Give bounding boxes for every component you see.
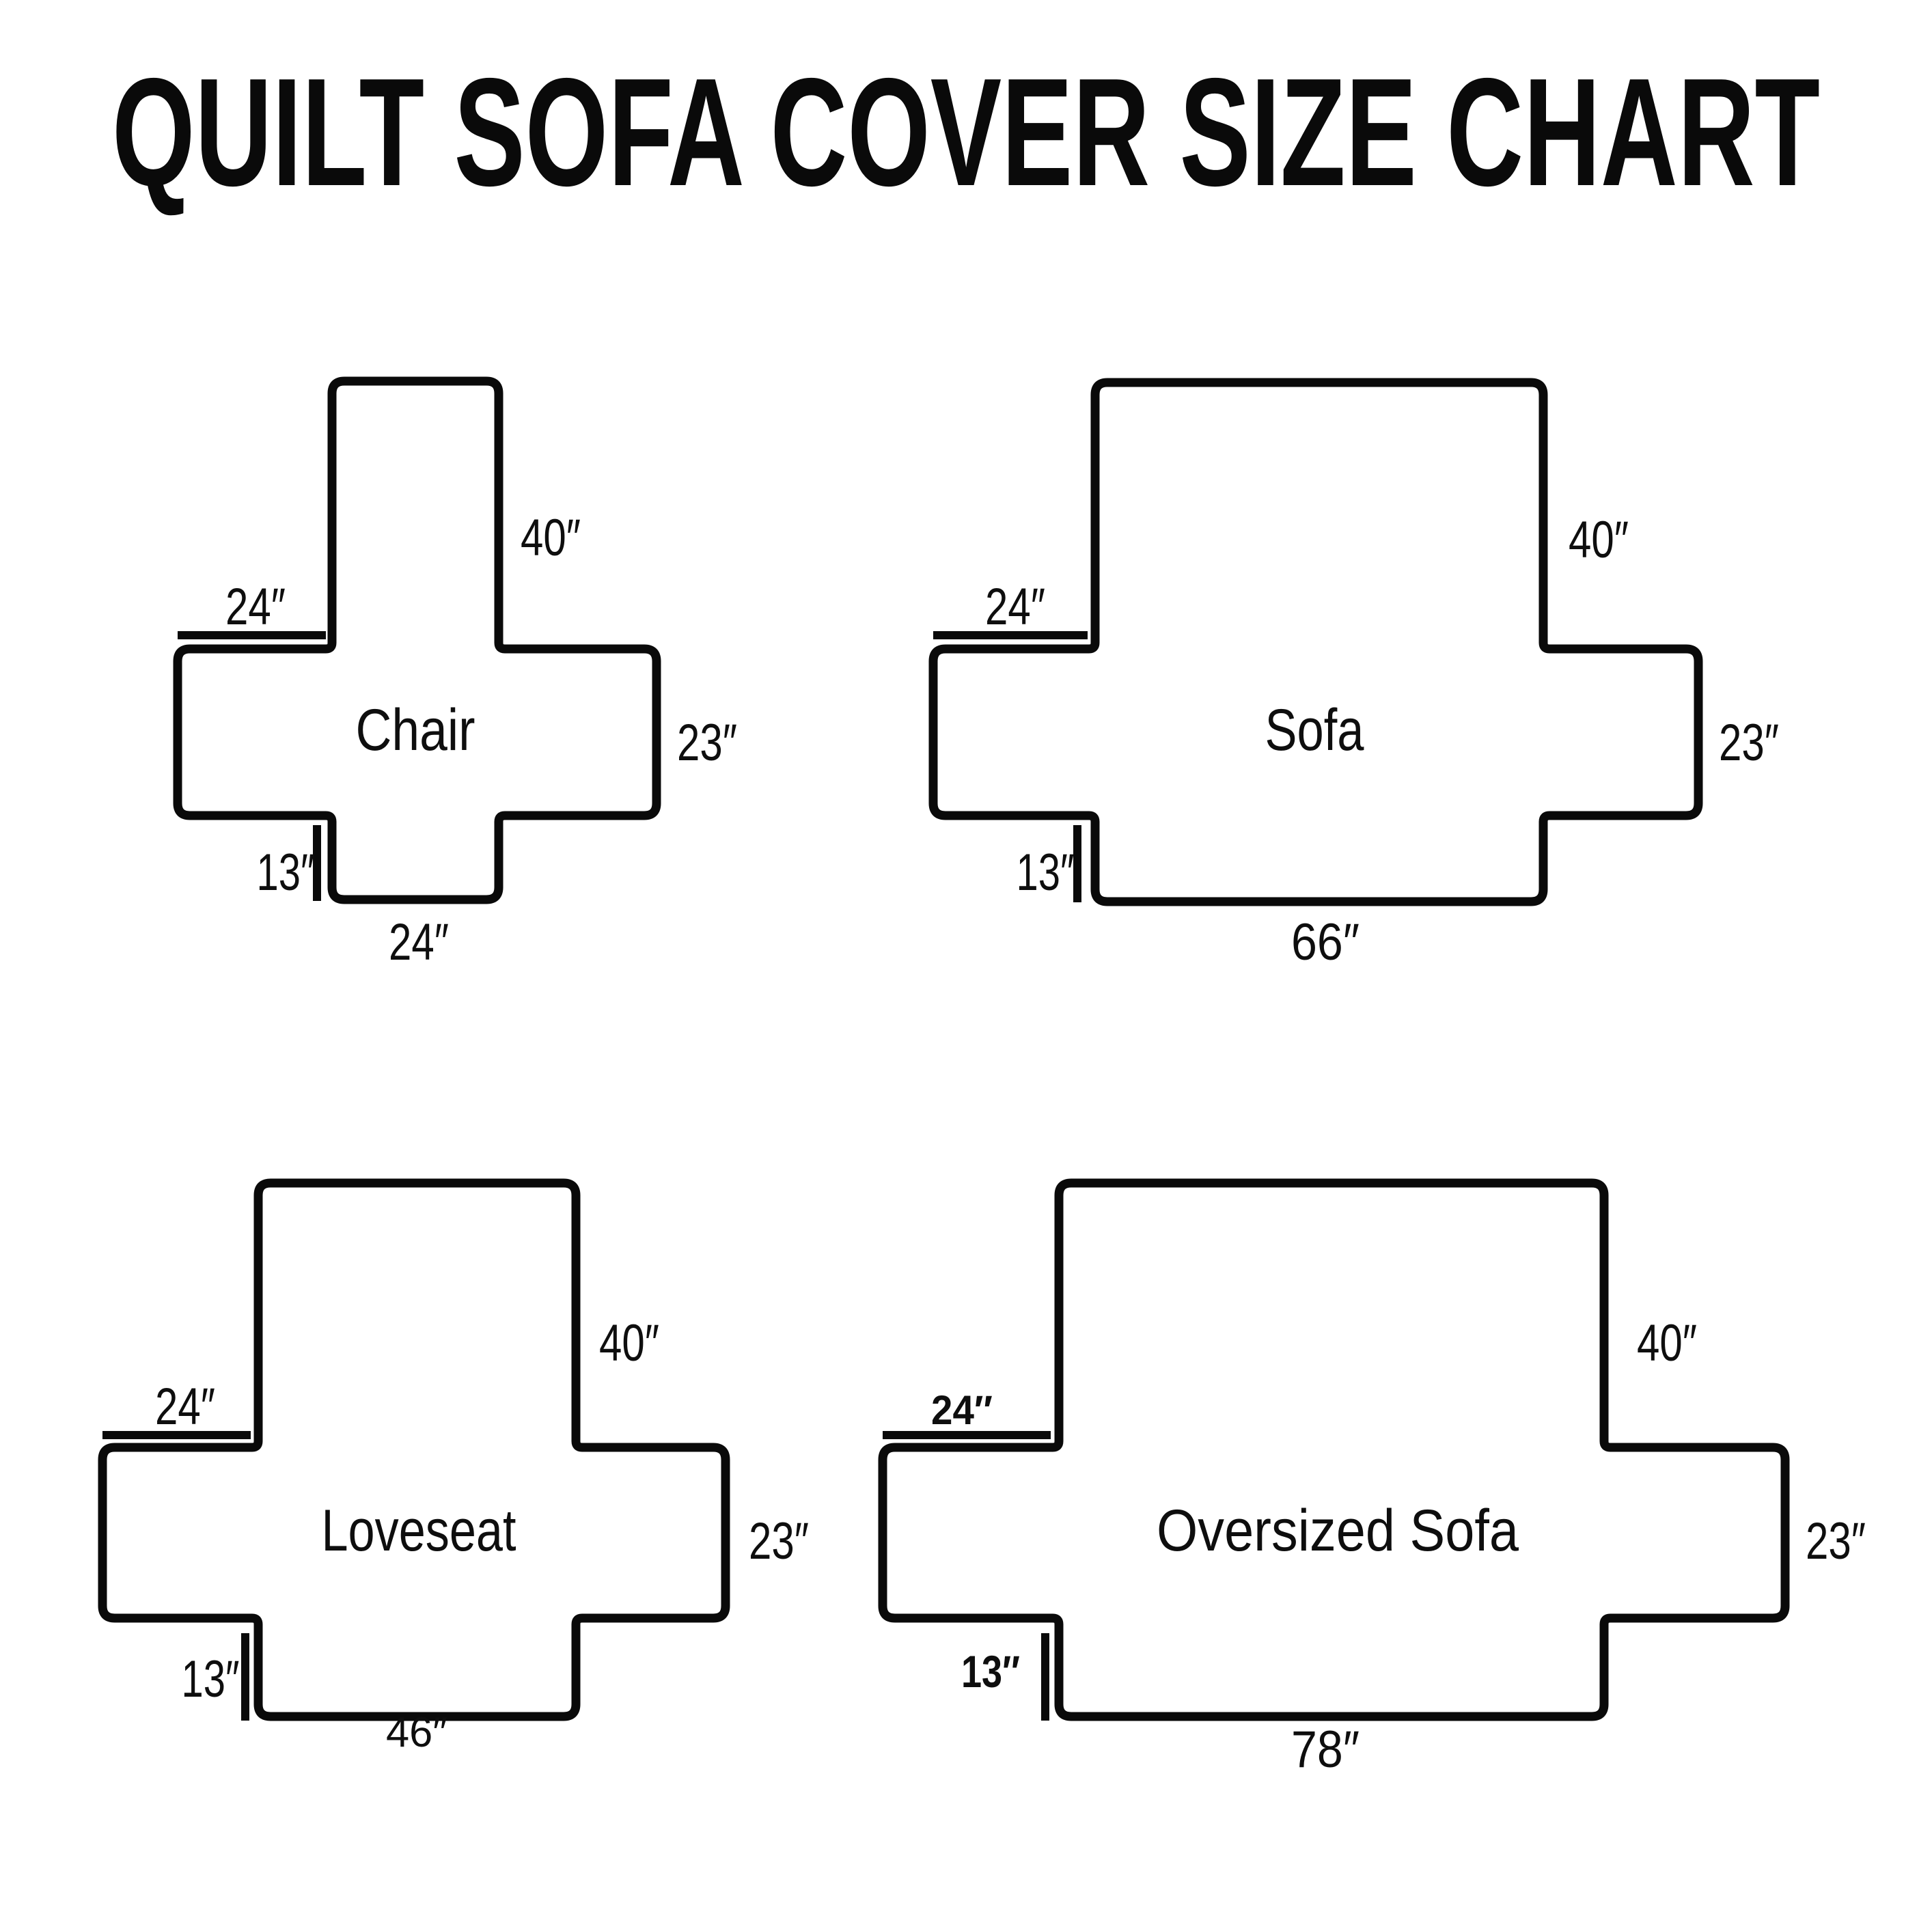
chair-seat-width-label: 24″ [389,913,449,971]
sofa-outline [933,383,1698,902]
oversized-sofa-seat-width-label: 78″ [1291,1721,1360,1779]
sofa-back-height-label: 40″ [1569,511,1629,569]
loveseat-arm-width-label: 24″ [155,1378,215,1436]
quilt-sofa-cover-size-chart: QUILT SOFA COVER SIZE CHART 40″ 24″ Chai… [0,0,1932,1918]
loveseat-outline [102,1183,726,1717]
loveseat-name-label: Loveseat [322,1498,516,1563]
diagram-sofa: 40″ 24″ Sofa 23″ 13″ 66″ [933,383,1779,971]
loveseat-seat-width-label: 46″ [386,1709,447,1756]
oversized-sofa-side-height-label: 23″ [1806,1512,1866,1570]
loveseat-front-drop-label: 13″ [182,1650,240,1708]
diagram-oversized-sofa: 40″ 24″ Oversized Sofa 23″ 13″ 78″ [883,1183,1866,1779]
chair-arm-width-label: 24″ [225,578,286,636]
chair-back-height-label: 40″ [521,509,581,567]
sofa-arm-width-label: 24″ [985,578,1045,636]
chair-front-drop-label: 13″ [257,844,315,902]
sofa-front-drop-label: 13″ [1017,844,1075,902]
chair-side-height-label: 23″ [677,714,737,772]
diagram-loveseat: 40″ 24″ Loveseat 23″ 13″ 46″ [102,1183,809,1756]
sofa-seat-width-label: 66″ [1291,913,1360,971]
page-title: QUILT SOFA COVER SIZE CHART [112,46,1820,218]
sofa-side-height-label: 23″ [1719,714,1779,772]
sofa-name-label: Sofa [1265,697,1364,763]
size-chart-page: QUILT SOFA COVER SIZE CHART 40″ 24″ Chai… [0,0,1932,1918]
chair-name-label: Chair [356,697,475,763]
oversized-sofa-arm-width-label: 24″ [931,1387,993,1433]
oversized-sofa-back-height-label: 40″ [1637,1314,1697,1372]
oversized-sofa-front-drop-label: 13″ [961,1646,1020,1697]
chair-outline [178,381,657,900]
loveseat-side-height-label: 23″ [749,1512,809,1570]
loveseat-back-height-label: 40″ [599,1314,659,1372]
oversized-sofa-outline [883,1183,1785,1717]
oversized-sofa-name-label: Oversized Sofa [1157,1498,1519,1563]
diagram-chair: 40″ 24″ Chair 23″ 13″ 24″ [178,381,737,971]
